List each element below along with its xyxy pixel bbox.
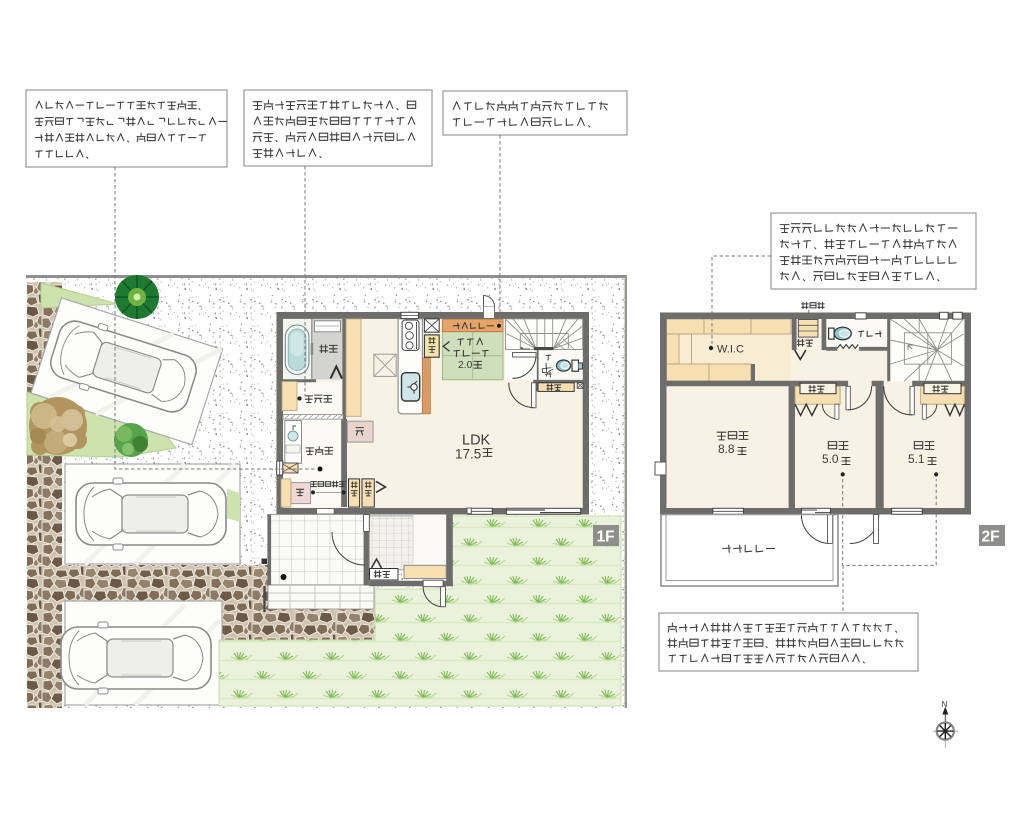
svg-text:1F: 1F: [597, 529, 615, 546]
svg-text:17.5: 17.5: [455, 447, 481, 462]
svg-text:W.I.C: W.I.C: [717, 344, 744, 356]
svg-text:2.0: 2.0: [458, 360, 473, 371]
svg-text:N: N: [942, 700, 948, 709]
svg-text:5.0: 5.0: [822, 452, 839, 466]
svg-text:8.8: 8.8: [718, 442, 735, 456]
svg-text:2F: 2F: [982, 529, 1000, 546]
svg-text:5.1: 5.1: [908, 452, 925, 466]
